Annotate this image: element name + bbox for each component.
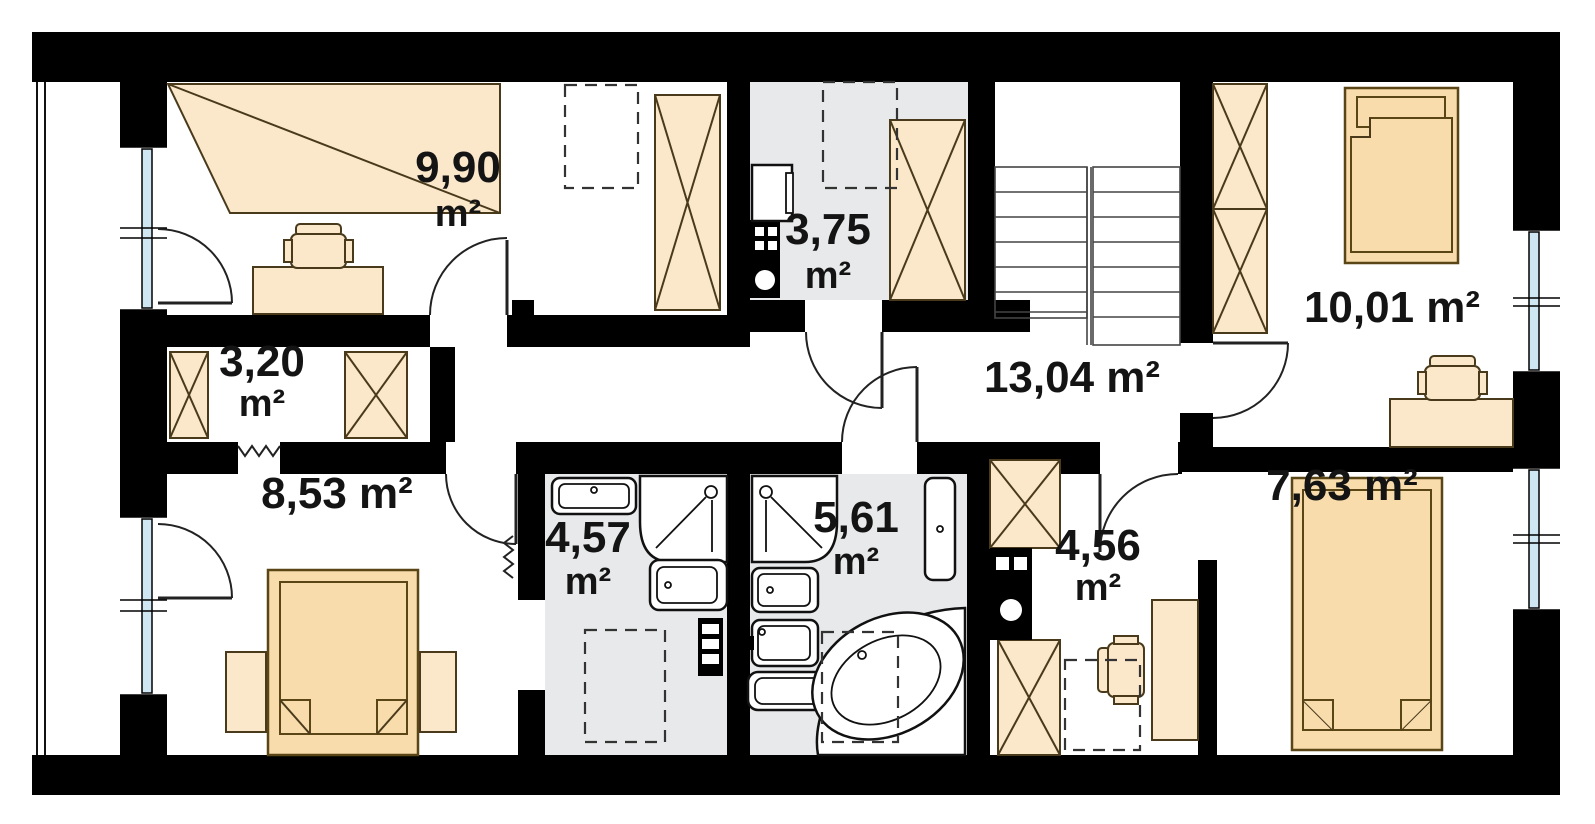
door-utility-room	[806, 332, 882, 408]
door-bathroom-right	[842, 367, 917, 442]
shower-bathroom-left	[640, 476, 727, 562]
radiator-zigzag-closet-left	[238, 446, 280, 456]
wardrobe-room-top-right	[1213, 84, 1267, 333]
towel-radiator-bathroom-left	[698, 618, 723, 676]
label-room-top-left-unit: m²	[435, 193, 481, 235]
label-bathroom-right-area: 5,61	[813, 493, 899, 542]
floor-plan-canvas: 9,90 m² 3,75 m² 3,20 m² 13,04 m² 10,01 m…	[0, 0, 1595, 824]
chimney-flue-closet-right	[990, 548, 1032, 640]
desk-closet-right	[1098, 600, 1198, 740]
door-bedroom-left	[446, 474, 516, 544]
window-right-bottom	[1513, 468, 1560, 610]
roof-window-outline-room-top-left	[565, 85, 638, 188]
bed-room-top-right	[1345, 88, 1458, 263]
staircase	[995, 167, 1180, 345]
washbasin-bathroom-left-top	[552, 478, 636, 514]
door-room-top-left	[430, 238, 507, 315]
wardrobe-room-top-left	[655, 95, 720, 310]
wardrobe-closet-left-b	[345, 352, 407, 438]
door-room-top-right	[1213, 343, 1288, 418]
label-bathroom-right-unit: m²	[833, 541, 879, 583]
label-bedroom-right: 7,63 m²	[1266, 461, 1418, 510]
label-closet-left-area: 3,20	[219, 337, 305, 386]
window-right-top	[1513, 230, 1560, 372]
label-utility-unit: m²	[805, 255, 851, 297]
wardrobe-utility-room	[890, 120, 965, 300]
chimney-flue-utility	[750, 220, 780, 298]
washbasin-bathroom-left-wall	[650, 560, 727, 610]
label-bedroom-left: 8,53 m²	[261, 469, 413, 518]
label-hall: 13,04 m²	[984, 353, 1160, 402]
label-utility-area: 3,75	[785, 205, 871, 254]
wardrobe-closet-right-a	[990, 460, 1060, 548]
bed-bedroom-right	[1292, 478, 1442, 750]
washbasin-bathroom-right-a	[752, 568, 818, 612]
door-balcony-top-left	[158, 229, 232, 303]
label-closet-right-unit: m²	[1075, 567, 1121, 609]
label-closet-right-area: 4,56	[1055, 521, 1141, 570]
radiator-panel-bathroom-right	[925, 478, 955, 580]
window-left-bottom	[120, 517, 167, 695]
wardrobe-closet-right-b	[998, 640, 1060, 755]
roof-eaves-line	[37, 82, 45, 755]
desk-room-top-left	[253, 224, 383, 314]
wardrobe-closet-left-a	[170, 352, 208, 438]
radiator-zigzag-bedroom-left	[504, 536, 513, 578]
bed-bedroom-left	[226, 570, 456, 755]
label-bathroom-left-area: 4,57	[545, 513, 631, 562]
label-room-top-left-area: 9,90	[415, 143, 501, 192]
floor-plan-svg: 9,90 m² 3,75 m² 3,20 m² 13,04 m² 10,01 m…	[0, 0, 1595, 824]
desk-room-top-right	[1390, 356, 1513, 447]
door-balcony-bedroom-left	[158, 524, 232, 598]
label-room-top-right: 10,01 m²	[1304, 283, 1480, 332]
label-bathroom-left-unit: m²	[565, 561, 611, 603]
washbasin-bathroom-right-b	[746, 620, 818, 666]
label-closet-left-unit: m²	[239, 383, 285, 425]
